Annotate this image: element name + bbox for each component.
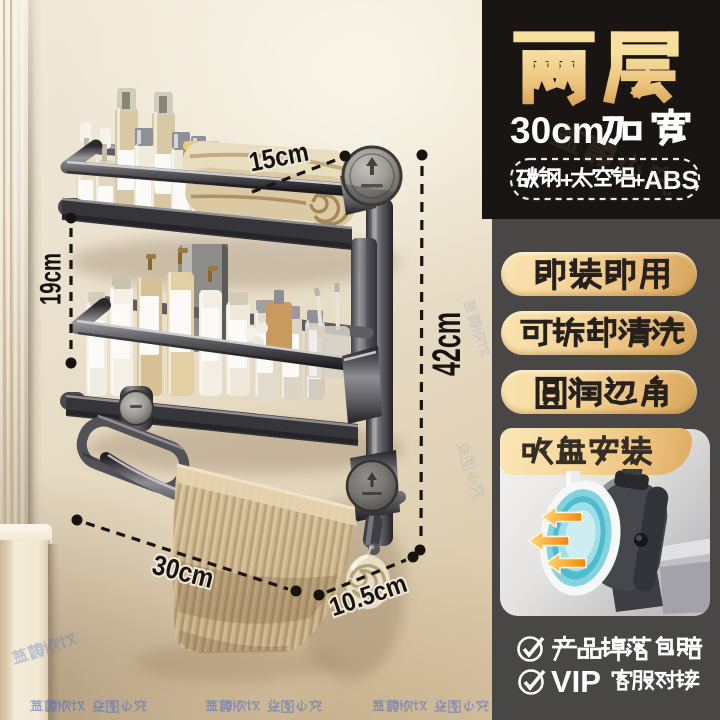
svg-text:15cm: 15cm — [246, 137, 311, 178]
svg-text:19cm: 19cm — [35, 253, 68, 305]
svg-text:42cm: 42cm — [425, 312, 469, 376]
svg-text:10.5cm: 10.5cm — [325, 568, 410, 622]
svg-text:30cm: 30cm — [149, 549, 217, 594]
svg-text:VIP: VIP — [551, 664, 601, 699]
svg-text:+: + — [560, 167, 573, 193]
